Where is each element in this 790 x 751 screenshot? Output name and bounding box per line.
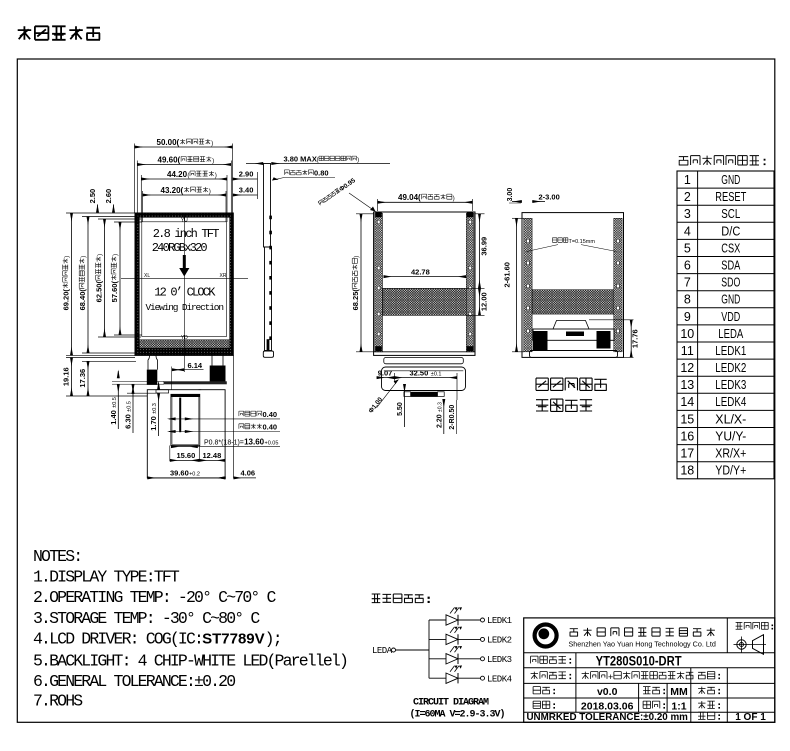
svg-text:13: 13: [680, 378, 694, 392]
svg-text:68.40(: 68.40(: [78, 289, 87, 311]
svg-text:GND: GND: [721, 292, 740, 307]
svg-text:5.BACKLIGHT: 4 CHIP-WHITE LED(: 5.BACKLIGHT: 4 CHIP-WHITE LED(Parellel): [33, 652, 347, 671]
svg-text:9.07: 9.07: [378, 368, 393, 377]
svg-text:2.OPERATING TEMP: -20° C~70° C: 2.OPERATING TEMP: -20° C~70° C: [33, 588, 276, 607]
svg-text:UNMRKED TOLERANCE:±0.20 mm: UNMRKED TOLERANCE:±0.20 mm: [526, 712, 688, 723]
svg-text:±0.1: ±0.1: [431, 371, 442, 377]
svg-text:17.36: 17.36: [78, 369, 87, 388]
svg-text:NOTES:: NOTES:: [33, 547, 81, 566]
svg-text:D/C: D/C: [721, 223, 740, 238]
svg-text:4: 4: [684, 224, 691, 238]
svg-text:62.50(: 62.50(: [95, 281, 104, 303]
svg-text:2.90: 2.90: [239, 170, 254, 179]
svg-text:50.00(: 50.00(: [157, 138, 180, 147]
svg-text:LEDA: LEDA: [718, 326, 743, 341]
svg-text:SCL: SCL: [721, 206, 740, 221]
svg-text:LEDK2: LEDK2: [487, 636, 512, 646]
svg-text:68.25(: 68.25(: [351, 289, 360, 311]
svg-text:8: 8: [684, 293, 691, 307]
svg-text:17.76: 17.76: [631, 329, 640, 348]
svg-text:49.60(: 49.60(: [158, 155, 181, 164]
svg-text:+0.05: +0.05: [265, 440, 279, 446]
svg-text:SDO: SDO: [721, 275, 740, 290]
svg-text:Shenzhen Yao Yuan Hong Techno: Shenzhen Yao Yuan Hong Technology Co. Lt…: [569, 640, 716, 649]
svg-text:15.60: 15.60: [177, 451, 196, 460]
svg-text:7.ROHS: 7.ROHS: [33, 692, 83, 711]
svg-text:6.GENERAL TOLERANCE:±0.20: 6.GENERAL TOLERANCE:±0.20: [33, 672, 235, 691]
svg-text:v0.0: v0.0: [597, 686, 618, 698]
svg-text:YU: YU: [181, 218, 188, 224]
svg-text:1.40: 1.40: [109, 410, 118, 425]
svg-text:RESET: RESET: [715, 189, 746, 204]
svg-text:): ): [64, 256, 71, 258]
svg-text:SDA: SDA: [721, 257, 740, 272]
svg-text:+0.2: +0.2: [189, 472, 200, 478]
svg-text:(: (: [317, 157, 319, 163]
svg-text:2.50: 2.50: [88, 189, 97, 204]
svg-text:1.DISPLAY TYPE:TFT: 1.DISPLAY TYPE:TFT: [33, 568, 180, 587]
svg-text:MM: MM: [670, 686, 688, 698]
svg-text:44.20: 44.20: [167, 170, 188, 179]
svg-text:2.60: 2.60: [104, 189, 113, 204]
svg-text:LEDK1: LEDK1: [487, 616, 512, 626]
svg-text:±0.3: ±0.3: [437, 402, 443, 412]
svg-text:CIRCUIT DIAGRAM: CIRCUIT DIAGRAM: [413, 698, 489, 709]
svg-text:LEDA: LEDA: [372, 646, 393, 656]
svg-text:1: 1: [684, 173, 691, 187]
svg-text:XR/X+: XR/X+: [715, 446, 746, 461]
svg-text:3: 3: [684, 207, 691, 221]
svg-text:49.04(: 49.04(: [398, 193, 421, 202]
svg-text:2-61.60: 2-61.60: [503, 262, 512, 287]
svg-text:12.48: 12.48: [203, 451, 222, 460]
svg-text:YU/Y-: YU/Y-: [715, 428, 746, 443]
svg-text:Viewing Direction: Viewing Direction: [146, 302, 224, 313]
svg-text:3.STORAGE TEMP: -30° C~80° C: 3.STORAGE TEMP: -30° C~80° C: [33, 609, 260, 628]
svg-text:): ): [212, 157, 214, 164]
svg-text:69.20(: 69.20(: [62, 289, 71, 311]
svg-text:1.70: 1.70: [149, 416, 158, 431]
svg-text:YD: YD: [181, 335, 188, 341]
svg-text:YT280S010-DRT: YT280S010-DRT: [596, 653, 683, 668]
svg-text:16: 16: [680, 429, 694, 443]
svg-text:2.20: 2.20: [436, 414, 443, 428]
svg-text:0.40: 0.40: [263, 423, 278, 432]
svg-text:±0.3: ±0.3: [152, 403, 158, 414]
svg-text:15: 15: [680, 412, 694, 426]
svg-text:LEDK3: LEDK3: [487, 655, 512, 665]
svg-text:6.30: 6.30: [124, 414, 133, 429]
svg-text:11: 11: [681, 344, 694, 358]
svg-text:1 OF 1: 1 OF 1: [735, 712, 766, 723]
svg-text:): ): [80, 256, 87, 258]
svg-text:LEDK1: LEDK1: [715, 343, 746, 358]
svg-text:12.00: 12.00: [480, 292, 489, 311]
svg-text:±0.5: ±0.5: [112, 397, 118, 408]
svg-text:9: 9: [684, 310, 691, 324]
svg-text:2-R0.50: 2-R0.50: [449, 405, 456, 430]
svg-text:18: 18: [680, 464, 694, 478]
svg-text:240RGBx320: 240RGBx320: [152, 241, 208, 255]
svg-text:14: 14: [680, 395, 694, 409]
svg-text:CSX: CSX: [721, 240, 740, 255]
svg-text:7: 7: [684, 276, 691, 290]
svg-text:12 0’ CLOCK: 12 0’ CLOCK: [154, 286, 216, 300]
svg-text:): ): [112, 254, 119, 256]
svg-text:): ): [453, 195, 455, 202]
svg-text:4.06: 4.06: [241, 469, 256, 478]
svg-text:5: 5: [684, 241, 691, 255]
svg-text:1:1: 1:1: [671, 700, 686, 712]
svg-text:3.80 MAX: 3.80 MAX: [284, 154, 317, 163]
svg-text:10: 10: [680, 327, 694, 341]
svg-text:): ): [97, 254, 104, 256]
svg-text:12: 12: [680, 361, 694, 375]
svg-text:): ): [357, 157, 359, 163]
svg-text:LEDK2: LEDK2: [715, 360, 746, 375]
svg-text:XL/X-: XL/X-: [715, 411, 746, 426]
svg-text:XL: XL: [144, 273, 150, 279]
svg-text:2-3.00: 2-3.00: [539, 192, 560, 201]
svg-text:43.20(: 43.20(: [161, 186, 184, 195]
svg-text:13.60: 13.60: [244, 437, 265, 446]
svg-text:): ): [353, 256, 360, 258]
svg-text:LEDK4: LEDK4: [715, 394, 746, 409]
svg-text:2: 2: [684, 190, 691, 204]
svg-text:LEDK4: LEDK4: [487, 674, 512, 684]
svg-text:2.8 inch TFT: 2.8 inch TFT: [153, 227, 219, 241]
svg-text:3.00: 3.00: [507, 188, 514, 202]
svg-text:0.80: 0.80: [314, 169, 329, 178]
svg-text:19.16: 19.16: [62, 367, 71, 386]
svg-text:YD/Y+: YD/Y+: [715, 463, 746, 478]
svg-text:2018.03.06: 2018.03.06: [581, 700, 634, 712]
svg-text:(I=60MA V=2.9-3.3V): (I=60MA V=2.9-3.3V): [409, 709, 504, 721]
svg-text:GND: GND: [721, 172, 740, 187]
svg-text:5.50: 5.50: [397, 402, 404, 416]
svg-text:0.40: 0.40: [263, 410, 278, 419]
svg-text:17: 17: [680, 447, 694, 461]
svg-text:): ): [215, 172, 217, 179]
svg-text:6.14: 6.14: [188, 361, 203, 370]
svg-text:39.60: 39.60: [170, 469, 189, 478]
svg-text:P0.8*(18-1)=: P0.8*(18-1)=: [204, 439, 244, 446]
svg-text:6: 6: [684, 258, 691, 272]
svg-text:57.60(: 57.60(: [110, 281, 119, 303]
svg-text:XR: XR: [220, 273, 227, 279]
svg-text:VDD: VDD: [721, 309, 740, 324]
svg-text:±0.5: ±0.5: [127, 401, 133, 412]
svg-text:32.50: 32.50: [410, 368, 429, 377]
svg-text:36.99: 36.99: [480, 237, 489, 256]
svg-text:): ): [209, 188, 211, 195]
svg-text:+: +: [608, 672, 613, 682]
svg-text:LEDK3: LEDK3: [715, 377, 746, 392]
svg-text:42.78: 42.78: [411, 267, 430, 276]
svg-text:3.40: 3.40: [239, 186, 254, 195]
svg-text:4.LCD DRIVER: COG(IC:ST7789V);: 4.LCD DRIVER: COG(IC:ST7789V);: [33, 630, 281, 649]
svg-text:T=0.15mm: T=0.15mm: [569, 239, 596, 245]
svg-text:): ): [211, 140, 213, 147]
